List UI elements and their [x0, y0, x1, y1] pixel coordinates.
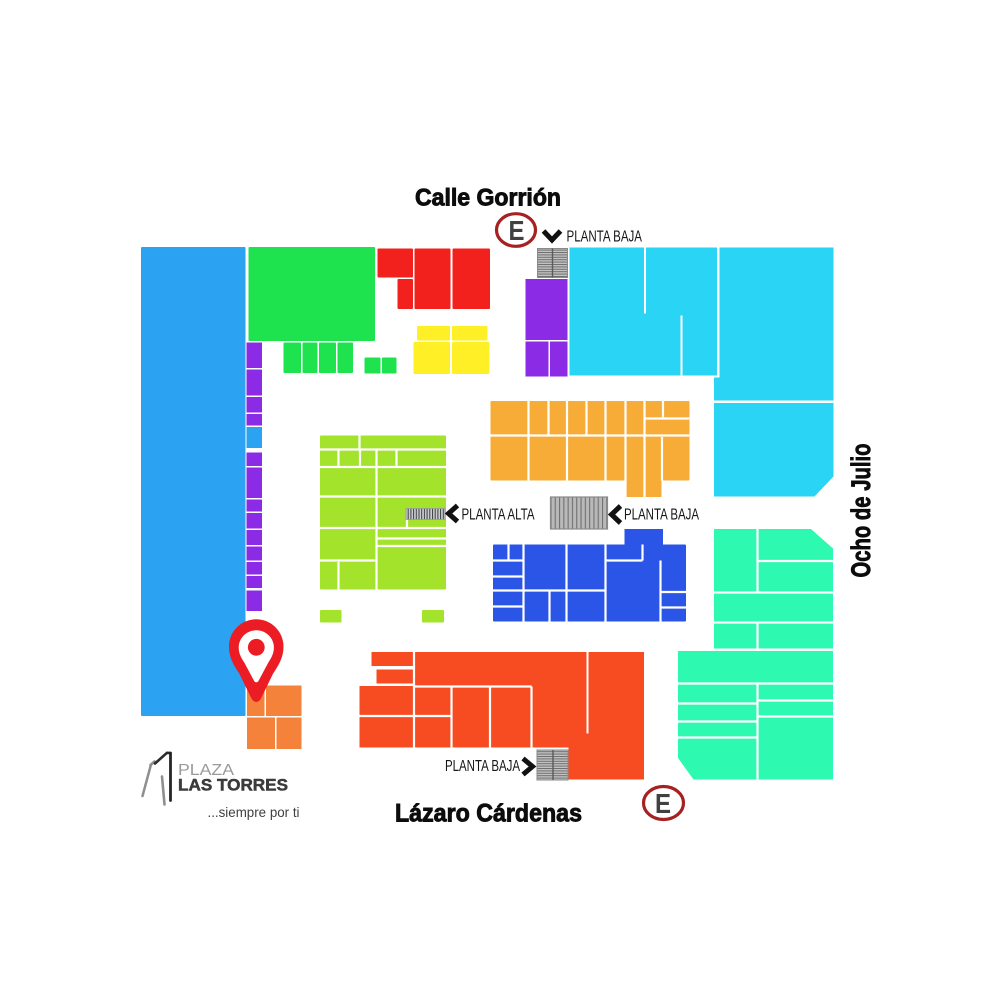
svg-text:PLANTA BAJA: PLANTA BAJA	[567, 229, 643, 246]
svg-text:Lázaro Cárdenas: Lázaro Cárdenas	[395, 800, 582, 828]
svg-text:LAS TORRES: LAS TORRES	[178, 777, 288, 795]
svg-text:PLANTA BAJA: PLANTA BAJA	[624, 507, 699, 524]
svg-text:Ocho de Julio: Ocho de Julio	[846, 444, 876, 578]
svg-text:Calle Gorrión: Calle Gorrión	[415, 185, 561, 212]
svg-text:E: E	[655, 788, 671, 819]
svg-text:...siempre por ti: ...siempre por ti	[208, 804, 300, 820]
svg-text:PLANTA ALTA: PLANTA ALTA	[462, 507, 535, 524]
svg-text:E: E	[509, 215, 525, 246]
svg-text:PLANTA BAJA: PLANTA BAJA	[445, 758, 520, 775]
